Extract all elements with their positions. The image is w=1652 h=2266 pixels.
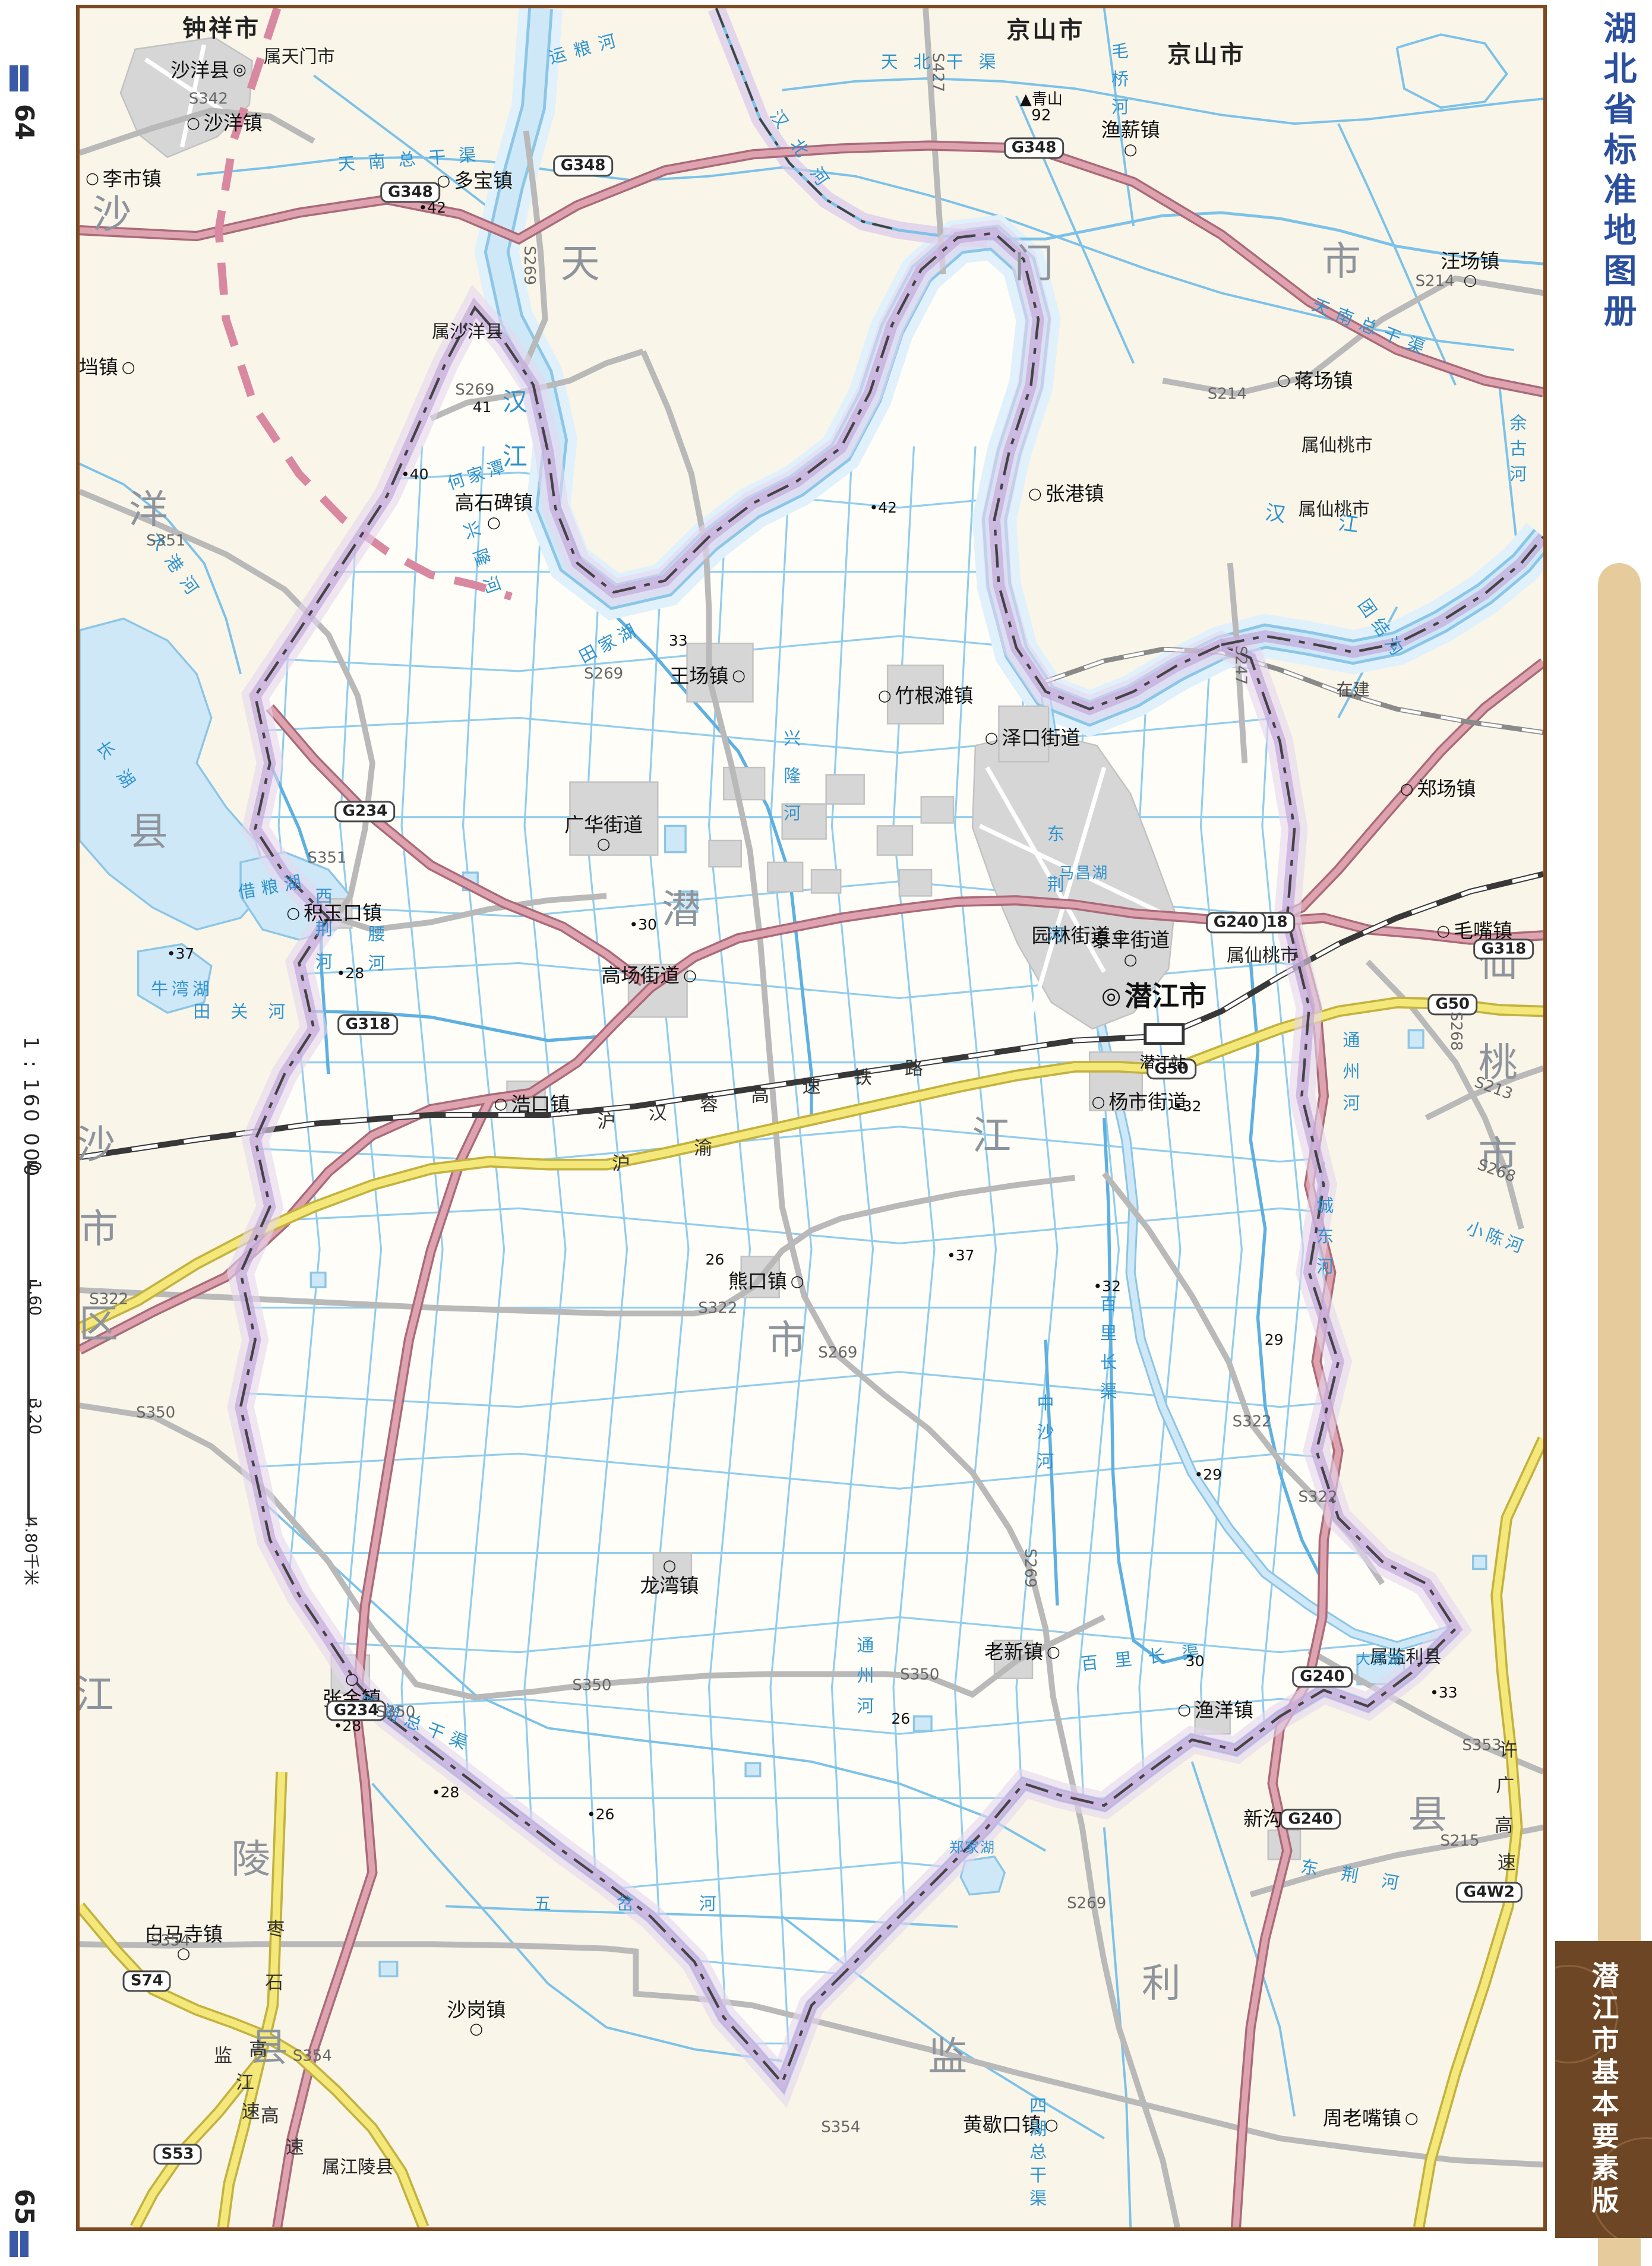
expressway-name-char: 沪	[612, 1155, 630, 1174]
town-name: 李市镇	[103, 169, 162, 189]
scale-tick-label: 1.60	[26, 1280, 44, 1316]
town-label: ○龙湾镇	[640, 1558, 699, 1596]
river-label: 腰河	[367, 925, 384, 983]
peak-triangle-icon: ▲青山	[1020, 92, 1063, 108]
town-label: ○郑场镇	[1400, 779, 1476, 800]
expressway-name-char: 石	[265, 1974, 283, 1993]
town-name: 沙岗镇	[447, 2000, 506, 2021]
river-label: 田关河	[193, 1002, 305, 1020]
river-label: 长湖	[93, 738, 149, 805]
left-page-number: 64	[9, 104, 39, 140]
region-name-char: 区	[79, 1304, 118, 1345]
road-number-label: S322	[698, 1301, 737, 1317]
town-circle-icon: ○	[122, 360, 135, 376]
town-circle-icon: ○	[985, 730, 999, 746]
annex-territory-label: 属天门市	[264, 48, 335, 67]
town-name: 熊口镇	[728, 1272, 787, 1292]
town-circle-icon: ○	[345, 1671, 359, 1687]
misc-label: 在建	[1337, 681, 1370, 698]
road-number-label: S353	[1462, 1738, 1501, 1754]
expressway-name-char: 高	[1495, 1816, 1513, 1836]
town-label: ○多宝镇	[437, 171, 513, 192]
river-label: 兴隆河	[782, 729, 800, 841]
river-label: 郑家湖	[949, 1841, 996, 1856]
town-label: ◎潜江市	[1101, 981, 1206, 1010]
peak-elevation: 92	[1020, 108, 1063, 124]
region-name-char: 沙	[76, 1124, 115, 1165]
road-number-badge: G240	[1206, 912, 1266, 933]
town-name: 沙洋县	[170, 60, 229, 81]
road-number-label: S322	[1233, 1414, 1272, 1430]
expressway-name-char: 铁	[854, 1068, 872, 1088]
river-label: 西荆河	[314, 887, 331, 985]
annex-territory-label: 属江陵县	[322, 2158, 393, 2177]
expressway-name-char: 汉	[649, 1104, 667, 1123]
region-name-char: 潜	[662, 889, 701, 930]
town-circle-icon: ○	[1047, 1645, 1060, 1661]
spot-height: •28	[337, 966, 365, 981]
town-label: 王场镇○	[669, 666, 746, 687]
road-number-label: S269	[584, 666, 623, 682]
town-circle-icon: ○	[487, 515, 501, 531]
town-circle-icon: ○	[732, 668, 746, 684]
town-label: ○浩口镇	[494, 1094, 570, 1115]
town-circle-icon: ○	[187, 116, 200, 132]
spot-height: •37	[947, 1248, 975, 1263]
town-name: 汪场镇	[1441, 251, 1499, 272]
town-label: 泰丰街道○	[1091, 930, 1170, 968]
town-name: 郑场镇	[1417, 779, 1476, 800]
town-label: 沙洋县◎	[170, 60, 247, 81]
expressway-name-char: 枣	[267, 1920, 285, 1940]
river-label: 四湖总干渠	[1028, 2096, 1045, 2212]
town-name: 潜江市	[1125, 981, 1206, 1010]
region-name-char: 天	[561, 243, 600, 284]
town-name: 周老嘴镇	[1323, 2109, 1401, 2129]
spot-height: •30	[629, 917, 657, 933]
spot-height: •42	[869, 500, 897, 515]
spot-height: •37	[167, 946, 195, 961]
town-label: ○积玉口镇	[286, 903, 382, 924]
river-label: 大苏湖	[1356, 1652, 1403, 1667]
road-number-label: S269	[1067, 1895, 1106, 1911]
town-label: 官垱镇○	[76, 358, 135, 378]
expressway-name-char: 速	[1498, 1854, 1516, 1873]
road-number-label: S342	[189, 91, 228, 108]
town-name: 老新镇	[984, 1642, 1043, 1663]
town-circle-icon: ○	[1124, 142, 1138, 158]
town-circle-icon: ○	[494, 1096, 508, 1113]
region-name-char: 利	[1142, 1962, 1181, 2003]
town-circle-icon: ○	[1436, 924, 1450, 940]
town-label: 周老嘴镇○	[1323, 2109, 1419, 2129]
spot-height: •33	[1430, 1685, 1458, 1700]
town-circle-icon: ○	[1177, 1702, 1191, 1718]
spot-height: 33	[669, 633, 688, 649]
scale-tick-label: 0	[26, 1161, 44, 1171]
expressway-name-char: 速	[286, 2138, 304, 2157]
river-label: 东荆河	[1045, 824, 1063, 976]
town-circle-icon: ○	[86, 171, 99, 187]
region-name-char: 门	[1015, 243, 1054, 284]
river-label: 通州河	[1341, 1031, 1359, 1125]
region-name-char: 市	[79, 1208, 118, 1249]
region-name-char: 市	[767, 1319, 806, 1360]
expressway-name-char: 高	[751, 1086, 769, 1105]
river-label: 余古河	[1508, 414, 1525, 491]
river-label: 小陈河	[1464, 1218, 1529, 1257]
spot-height: •28	[334, 1718, 362, 1734]
neighbor-city-label: 京山市	[1167, 42, 1246, 67]
expressway-name-char: 沪	[598, 1113, 616, 1132]
river-label: 通州河	[855, 1636, 873, 1727]
road-number-badge: S53	[154, 2144, 202, 2164]
town-label: ○竹根滩镇	[878, 686, 974, 707]
town-circle-icon: ○	[597, 836, 611, 852]
road-number-label: S350	[572, 1678, 611, 1694]
road-number-label: S351	[307, 850, 346, 866]
road-number-badge: G4W2	[1456, 1882, 1523, 1902]
expressway-name-char: 监	[214, 2047, 232, 2066]
town-circle-icon: ○	[878, 688, 892, 704]
road-number-badge: G348	[1004, 138, 1065, 159]
region-name-char: 江	[76, 1674, 114, 1715]
town-name: 广华街道	[564, 815, 643, 836]
sheet-title-banner: 潜江市基本要素版	[1555, 1941, 1652, 2238]
region-name-char: 沙	[92, 194, 131, 235]
road-number-label: S214	[1208, 386, 1247, 402]
annex-territory-label: 属仙桃市	[1302, 436, 1373, 455]
town-label: ○张港镇	[1028, 484, 1104, 505]
river-label: 团结沟	[1355, 596, 1410, 663]
scale-tick-label: 3.20	[26, 1399, 44, 1434]
town-circle-icon: ○	[1405, 2110, 1419, 2126]
road-number-label: S322	[89, 1292, 128, 1308]
map-labels-layer: 沙洋县天门市仙桃市沙市区江陵县监利县潜江市钟祥市京山市京山市属天门市属沙洋县属仙…	[80, 8, 1543, 2227]
town-circle-icon: ○	[1400, 781, 1414, 797]
spot-height: •40	[401, 466, 429, 482]
page-number-bar-top	[10, 65, 18, 91]
atlas-series-title: 湖北省标准地图册	[1593, 11, 1641, 334]
station-name: 潜江站	[1139, 1050, 1186, 1072]
road-number-label: S247	[1232, 646, 1248, 685]
river-label: 东荆河	[1300, 1857, 1424, 1897]
river-label: 借粮湖	[237, 872, 309, 902]
expressway-name-char: 高	[261, 2107, 279, 2126]
town-label: ○沙洋镇	[187, 113, 263, 134]
road-number-badge: G240	[1280, 1809, 1341, 1829]
region-name-char: 县	[1408, 1794, 1447, 1835]
mountain-peak-label: ▲青山92	[1020, 92, 1063, 125]
town-name: 张港镇	[1045, 484, 1104, 505]
expressway-name-char: 蓉	[700, 1095, 718, 1114]
county-circle-icon: ◎	[233, 62, 247, 78]
town-name: 蒋场镇	[1294, 371, 1353, 391]
river-label: 城东河	[1315, 1197, 1332, 1288]
spot-height: 26	[891, 1711, 910, 1727]
spot-height: •32	[1093, 1279, 1121, 1294]
road-number-label: S214	[1416, 273, 1455, 289]
town-label: 渔薪镇○	[1101, 120, 1160, 158]
town-label: 熊口镇○	[728, 1272, 804, 1292]
town-name: 渔洋镇	[1195, 1700, 1253, 1721]
town-circle-icon: ○	[1028, 486, 1042, 502]
spot-height: •42	[419, 200, 447, 216]
town-circle-icon: ○	[1463, 273, 1477, 289]
road-number-badge: G318	[338, 1014, 399, 1035]
town-label: 广华街道○	[564, 815, 643, 853]
town-label: ○泽口街道	[985, 728, 1081, 749]
spot-height: 29	[1265, 1332, 1284, 1347]
scale-bar: 01.603.204.80千米	[27, 1161, 30, 1518]
river-label: 五岔河	[534, 1894, 782, 1912]
road-number-badge: G348	[553, 156, 614, 176]
railway-station-label: 潜江站	[1139, 1048, 1186, 1072]
spot-height: 30	[1186, 1654, 1205, 1669]
expressway-name-char: 许	[1499, 1740, 1517, 1760]
town-name: 浩口镇	[511, 1094, 570, 1115]
expressway-name-char: 广	[1496, 1776, 1514, 1796]
atlas-page: 64 1 : 160 000 01.603.204.80千米 65 湖北省标准地…	[0, 0, 1652, 2266]
road-number-label: S354	[151, 1933, 190, 1949]
town-name: 官垱镇	[76, 358, 118, 378]
town-name: 泽口街道	[1002, 728, 1080, 749]
town-label: ○杨市街道	[1092, 1092, 1187, 1113]
road-number-label: S350	[136, 1405, 175, 1421]
river-label: 中沙河	[1035, 1393, 1053, 1481]
region-name-char: 洋	[129, 489, 168, 530]
river-label: 天南总干渠	[1309, 296, 1435, 361]
river-label: 马昌湖	[1059, 865, 1108, 881]
town-circle-icon: ○	[1092, 1094, 1105, 1110]
spot-height: •29	[1194, 1467, 1222, 1483]
town-circle-icon: ○	[791, 1274, 804, 1290]
town-name: 龙湾镇	[640, 1576, 699, 1597]
river-label: 兴隆河	[460, 519, 507, 608]
spot-height: 41	[473, 400, 492, 415]
road-number-label: S322	[1298, 1489, 1337, 1505]
expressway-name-char: 渝	[694, 1139, 712, 1159]
town-label: 老新镇○	[984, 1642, 1060, 1663]
town-circle-icon: ○	[683, 968, 697, 984]
river-label: 百里长渠	[1098, 1295, 1116, 1411]
expressway-name-char: 路	[905, 1060, 923, 1079]
road-number-label: S350	[376, 1705, 415, 1721]
region-name-char: 县	[129, 811, 168, 852]
spot-height: 26	[705, 1252, 724, 1268]
road-number-label: S269	[521, 246, 537, 285]
town-circle-icon: ○	[469, 2021, 483, 2037]
river-label: 汉江	[500, 388, 526, 498]
map-canvas: 沙洋县天门市仙桃市沙市区江陵县监利县潜江市钟祥市京山市京山市属天门市属沙洋县属仙…	[76, 5, 1547, 2231]
page-number-bar-top2	[20, 65, 29, 91]
road-number-label: S269	[818, 1345, 857, 1361]
town-circle-icon: ○	[663, 1558, 677, 1574]
expressway-name-char: 江	[236, 2074, 254, 2093]
annex-territory-label: 属沙洋县	[432, 323, 503, 342]
region-name-char: 监	[928, 2036, 967, 2077]
town-label: ○蒋场镇	[1277, 371, 1353, 391]
neighbor-city-label: 钟祥市	[182, 16, 261, 41]
river-label: 运粮河	[547, 30, 625, 67]
region-name-char: 江	[972, 1115, 1011, 1156]
road-number-label: S354	[293, 2049, 332, 2065]
road-number-label: S268	[1448, 1012, 1464, 1051]
town-circle-icon: ○	[1124, 952, 1138, 968]
road-number-label: S269	[1021, 1548, 1037, 1588]
road-number-label: S269	[455, 382, 494, 398]
expressway-name-char: 速	[803, 1077, 821, 1096]
neighbor-city-label: 京山市	[1006, 18, 1085, 43]
page-number-bar-bottom	[10, 2231, 18, 2257]
region-name-char: 陵	[231, 1838, 270, 1879]
town-name: 高场街道	[601, 966, 680, 987]
town-name: 多宝镇	[454, 171, 513, 192]
spot-height: •28	[432, 1785, 460, 1800]
town-label: 高场街道○	[601, 966, 697, 987]
spot-height: •26	[587, 1807, 615, 1822]
town-name: 沙洋镇	[204, 113, 263, 134]
river-label: 田家湖	[576, 620, 643, 666]
road-number-label: S215	[1440, 1833, 1479, 1849]
road-number-badge: G234	[335, 801, 396, 822]
town-circle-icon: ○	[1277, 373, 1291, 389]
sheet-title: 潜江市基本要素版	[1584, 1961, 1623, 2218]
river-label: 汉北河	[766, 106, 841, 203]
right-page-number: 65	[9, 2189, 39, 2225]
map-scale-text: 1 : 160 000	[1, 1036, 43, 1178]
annex-territory-label: 属仙桃市	[1227, 947, 1298, 966]
town-label: ○李市镇	[86, 169, 162, 189]
road-number-label: S350	[900, 1667, 939, 1683]
town-name: 王场镇	[669, 666, 728, 687]
road-number-label: S427	[929, 53, 945, 92]
river-label: 牛湾湖	[151, 980, 213, 998]
county-circle-icon: ◎	[1101, 984, 1121, 1008]
page-number-bar-bottom2	[20, 2231, 29, 2257]
road-number-label: S351	[146, 533, 185, 549]
town-name: 竹根滩镇	[895, 686, 974, 707]
road-number-badge: G318	[1474, 938, 1534, 959]
spot-height: •32	[1174, 1099, 1202, 1114]
road-number-badge: S74	[123, 1971, 171, 1992]
river-label: 毛桥河	[1110, 42, 1127, 126]
town-label: 沙岗镇○	[447, 2000, 506, 2038]
region-name-char: 市	[1322, 241, 1361, 282]
expressway-name-char: 高	[249, 2040, 267, 2060]
town-name: 泰丰街道	[1091, 930, 1170, 951]
scale-tick-label: 4.80千米	[21, 1518, 44, 1585]
town-circle-icon: ○	[286, 906, 300, 922]
road-number-label: S354	[821, 2119, 860, 2135]
expressway-name-char: 速	[242, 2102, 260, 2122]
town-label: ○渔洋镇	[1177, 1700, 1253, 1721]
road-number-badge: G240	[1292, 1667, 1353, 1687]
